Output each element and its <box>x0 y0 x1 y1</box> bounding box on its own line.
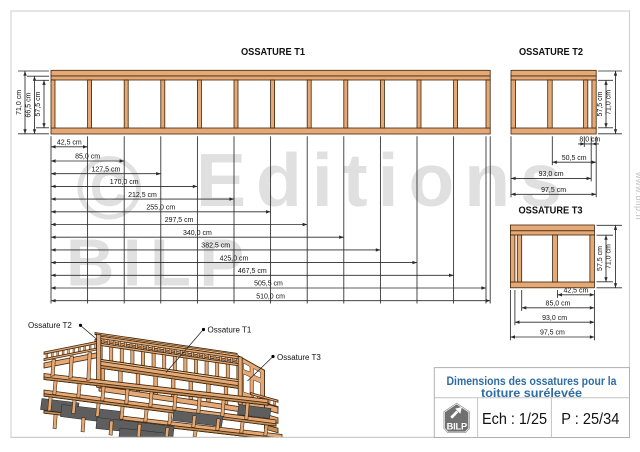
svg-text:42,5 cm: 42,5 cm <box>57 140 82 147</box>
svg-text:42,5 cm: 42,5 cm <box>563 288 588 295</box>
svg-text:71,0 cm: 71,0 cm <box>16 90 23 115</box>
svg-text:93,0 cm: 93,0 cm <box>542 315 567 322</box>
svg-text:Ossature T1: Ossature T1 <box>208 326 252 335</box>
svg-text:85,0 cm: 85,0 cm <box>546 301 571 308</box>
svg-text:Ossature T2: Ossature T2 <box>28 321 72 330</box>
svg-text:425,0 cm: 425,0 cm <box>220 255 249 262</box>
svg-text:297,5 cm: 297,5 cm <box>165 217 194 224</box>
svg-text:50,5 cm: 50,5 cm <box>562 155 587 162</box>
svg-text:BILP: BILP <box>447 422 467 432</box>
svg-text:255,0 cm: 255,0 cm <box>146 205 175 212</box>
svg-text:OSSATURE T1: OSSATURE T1 <box>241 47 305 58</box>
svg-text:8,0 cm: 8,0 cm <box>579 137 600 144</box>
svg-text:85,0 cm: 85,0 cm <box>75 154 100 161</box>
svg-text:212,5 cm: 212,5 cm <box>128 192 157 199</box>
svg-text:66,5 cm: 66,5 cm <box>25 92 32 117</box>
svg-text:510,0 cm: 510,0 cm <box>256 293 285 300</box>
svg-text:97,5 cm: 97,5 cm <box>541 187 566 194</box>
svg-text:57,5 cm: 57,5 cm <box>35 91 42 116</box>
svg-text:www.bilp.fr: www.bilp.fr <box>634 171 640 221</box>
svg-text:Ossature T3: Ossature T3 <box>277 353 321 362</box>
svg-text:97,5 cm: 97,5 cm <box>540 330 565 337</box>
svg-text:170,0 cm: 170,0 cm <box>110 179 139 186</box>
svg-text:382,5 cm: 382,5 cm <box>201 243 230 250</box>
svg-text:340,0 cm: 340,0 cm <box>183 230 212 237</box>
svg-text:OSSATURE T2: OSSATURE T2 <box>519 47 583 58</box>
svg-text:71,0 cm: 71,0 cm <box>605 244 612 269</box>
svg-text:93,0 cm: 93,0 cm <box>539 171 564 178</box>
svg-text:OSSATURE T3: OSSATURE T3 <box>519 206 583 217</box>
svg-text:71,0 cm: 71,0 cm <box>605 90 612 115</box>
svg-text:467,5 cm: 467,5 cm <box>238 268 267 275</box>
svg-text:toiture surélevée: toiture surélevée <box>481 386 582 400</box>
svg-text:57,5 cm: 57,5 cm <box>597 246 604 271</box>
svg-text:505,5 cm: 505,5 cm <box>254 281 283 288</box>
svg-text:P : 25/34: P : 25/34 <box>561 411 619 428</box>
svg-text:57,5 cm: 57,5 cm <box>597 91 604 116</box>
svg-text:127,5 cm: 127,5 cm <box>92 166 121 173</box>
svg-text:Ech : 1/25: Ech : 1/25 <box>482 411 547 428</box>
